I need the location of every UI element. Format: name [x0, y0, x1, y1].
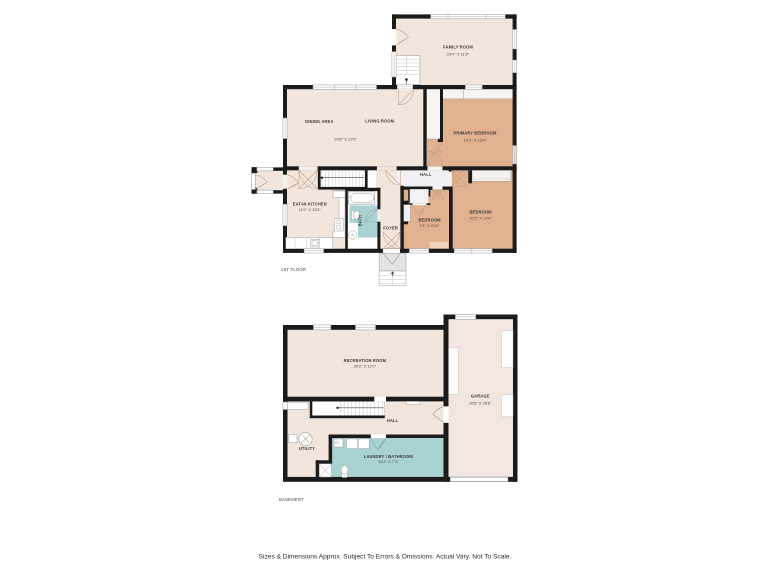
svg-text:19'4" X 11'8": 19'4" X 11'8" [447, 52, 470, 56]
svg-text:LIVING ROOM: LIVING ROOM [365, 118, 394, 123]
svg-text:HALL: HALL [387, 418, 399, 423]
svg-text:1ST FLOOR: 1ST FLOOR [281, 267, 306, 272]
svg-text:19'3" X 7'3": 19'3" X 7'3" [378, 460, 399, 464]
svg-text:BASEMENT: BASEMENT [279, 497, 304, 502]
svg-text:14'2" X 13'4": 14'2" X 13'4" [464, 138, 487, 142]
svg-text:24'8" X 13'5": 24'8" X 13'5" [334, 137, 357, 141]
svg-text:BEDROOM: BEDROOM [469, 210, 492, 215]
svg-text:FAMILY ROOM: FAMILY ROOM [443, 45, 473, 50]
svg-text:7'1" X 9'10": 7'1" X 9'10" [419, 224, 440, 228]
svg-text:BATH: BATH [357, 215, 362, 227]
svg-text:BEDROOM: BEDROOM [418, 217, 441, 222]
svg-text:EAT-IN KITCHEN: EAT-IN KITCHEN [293, 202, 327, 207]
svg-text:DINING AREA: DINING AREA [305, 119, 333, 124]
svg-text:PRIMARY BEDROOM: PRIMARY BEDROOM [454, 131, 497, 136]
svg-text:10'2" X 13'4": 10'2" X 13'4" [469, 217, 492, 221]
svg-text:HALL: HALL [420, 172, 432, 177]
svg-text:10'8" X 26'6": 10'8" X 26'6" [469, 402, 492, 406]
svg-text:Sizes & Dimensions Approx. Sub: Sizes & Dimensions Approx. Subject To Er… [259, 554, 512, 561]
svg-text:11'0" X 13'5": 11'0" X 13'5" [299, 208, 322, 212]
svg-text:20'2" X 12'0": 20'2" X 12'0" [354, 364, 377, 368]
svg-text:GARAGE: GARAGE [471, 394, 490, 399]
svg-text:UTILITY: UTILITY [299, 446, 315, 451]
svg-text:FOYER: FOYER [383, 226, 398, 231]
svg-text:RECREATION ROOM: RECREATION ROOM [344, 358, 387, 363]
svg-text:LAUNDRY \ BATHROOM: LAUNDRY \ BATHROOM [364, 454, 414, 459]
